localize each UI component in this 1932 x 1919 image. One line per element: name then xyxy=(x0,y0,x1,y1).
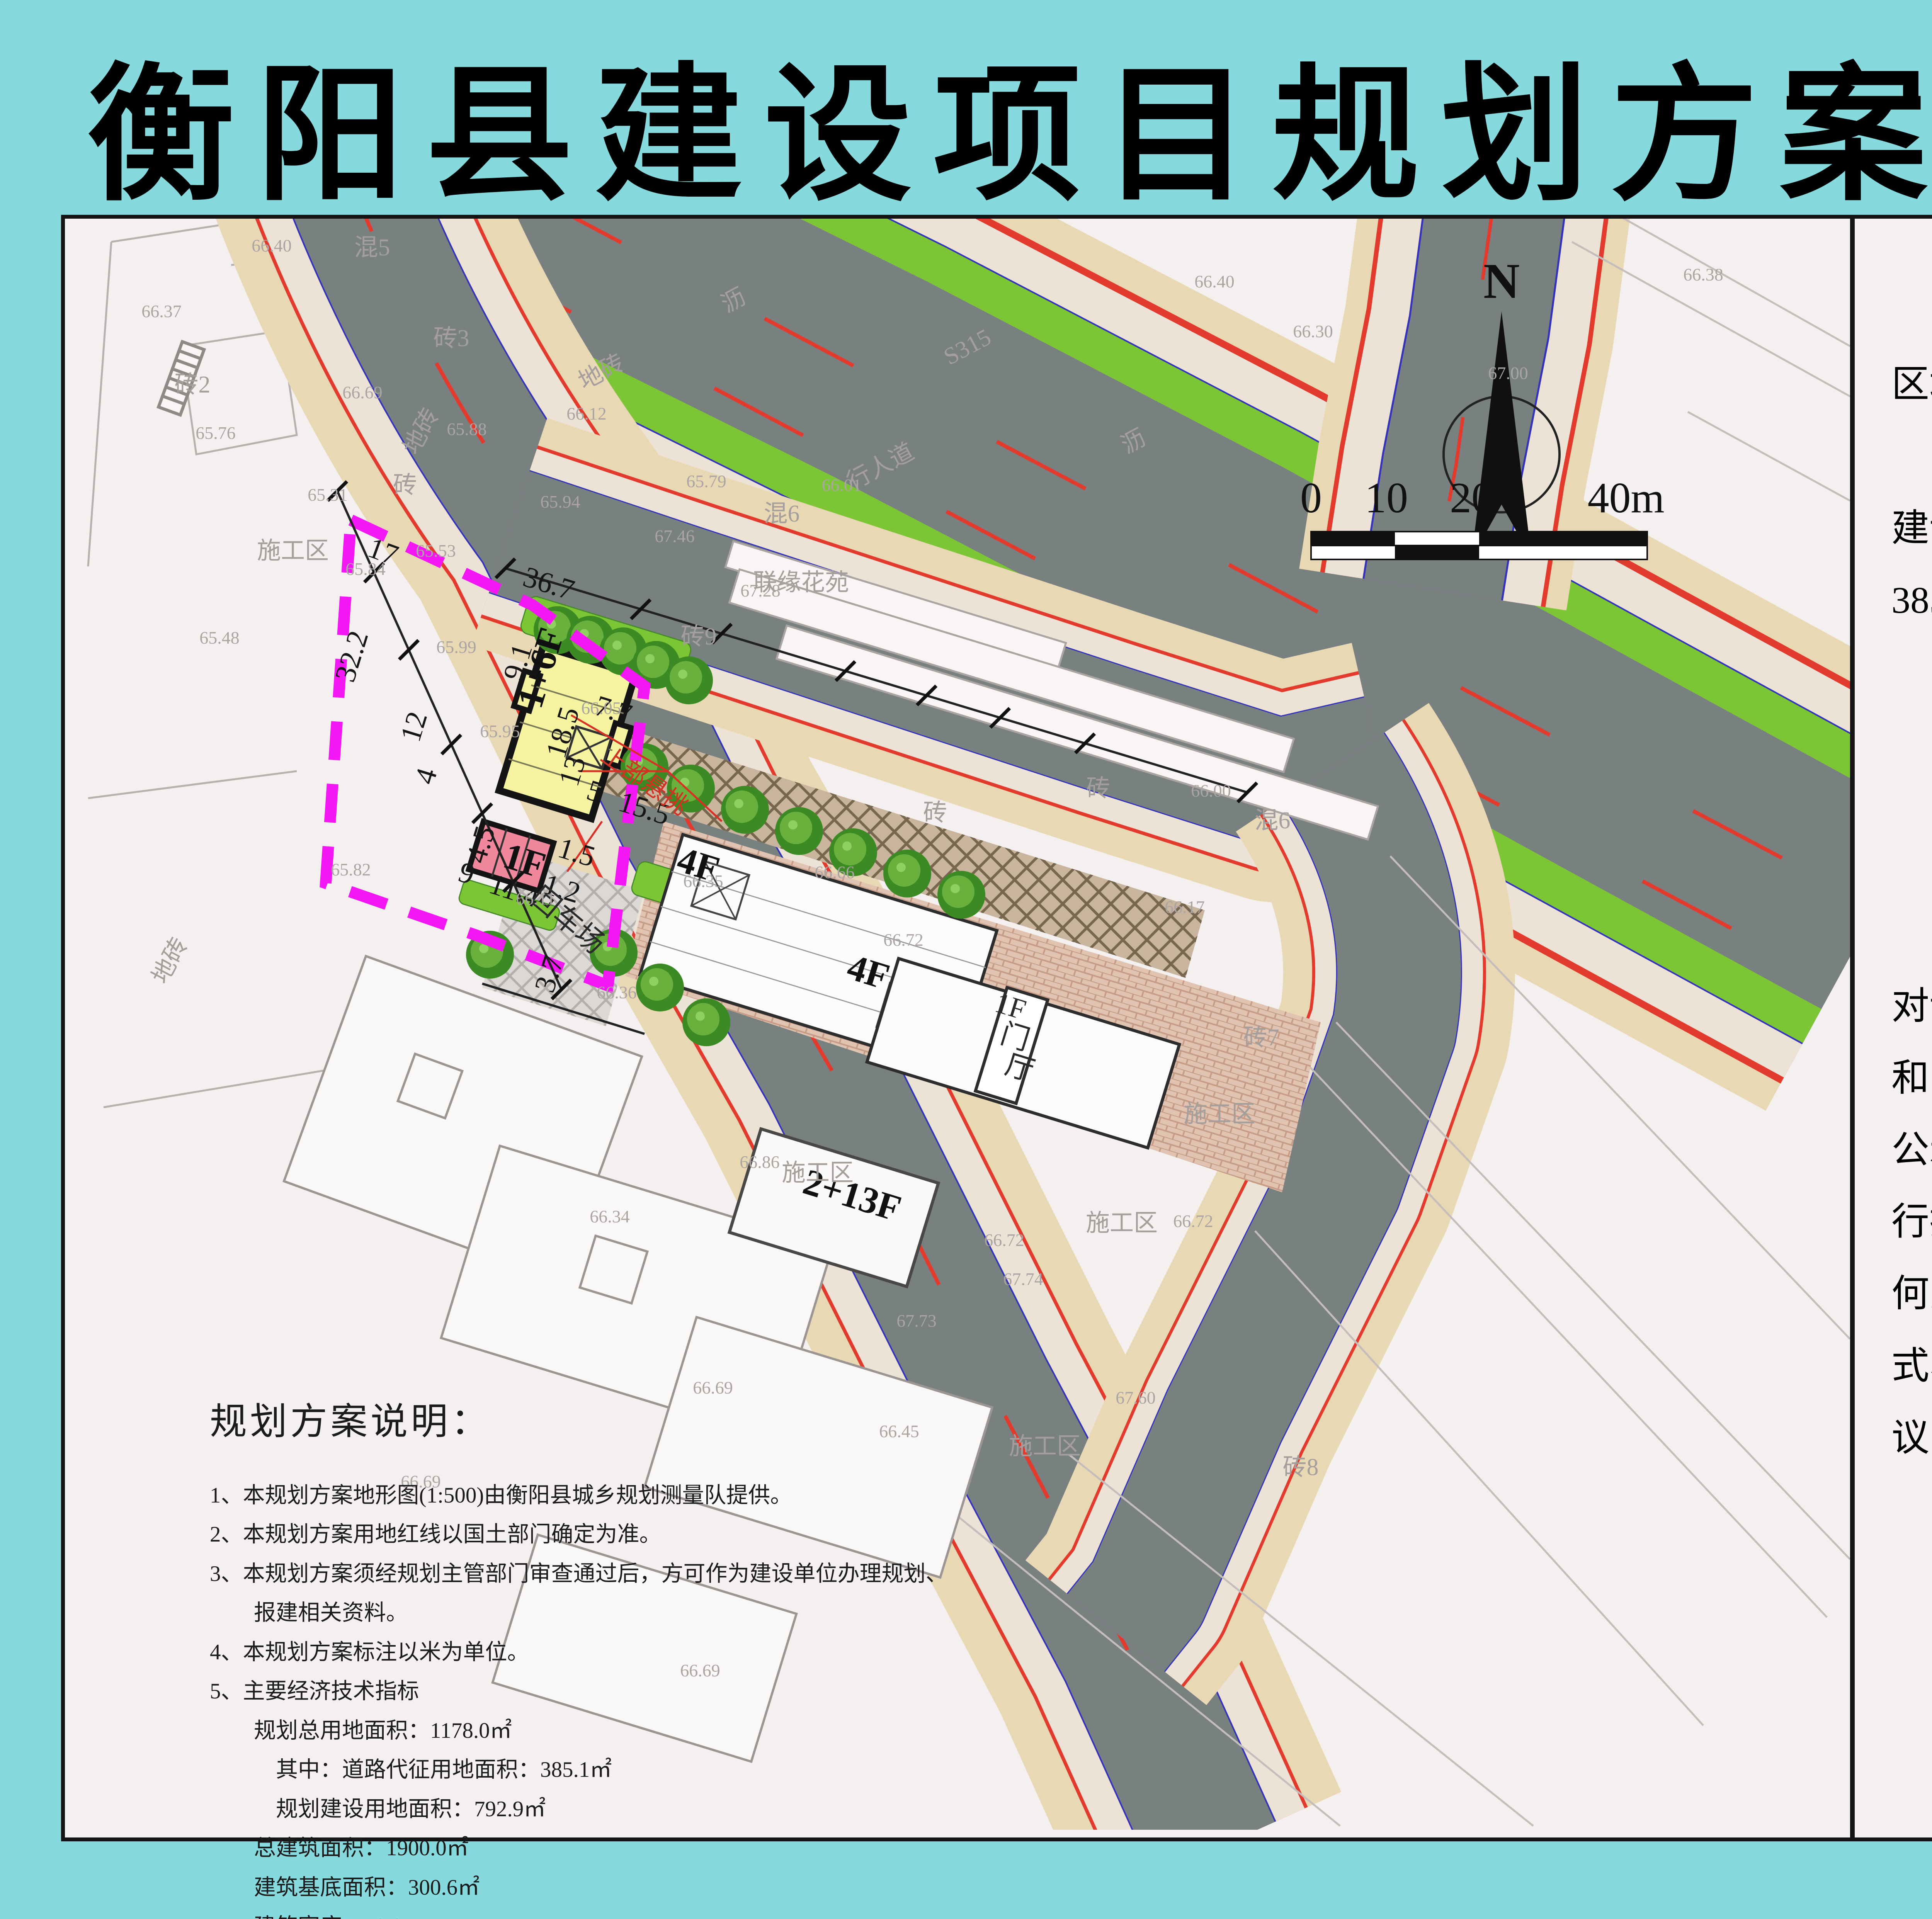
list-item: 1、本规划方案地形图(1:500)由衡阳县城乡规划测量队提供。 xyxy=(210,1476,967,1515)
list-item: 规划总用地面积：1178.0㎡ xyxy=(210,1711,967,1750)
content-box: 混566.4066.37砖2砖366.69砖65.7665.3165.4865.… xyxy=(61,215,1932,1841)
map-label: 66.40 xyxy=(1194,272,1235,291)
notice-panel: “财福苑”项目位于衡阳县西渡镇米子社区培元组，主要技术经济指标如下： 1、规划总… xyxy=(1855,219,1932,1837)
map-label: 65.31 xyxy=(308,485,348,505)
map-label: 40m xyxy=(1587,474,1664,522)
map-label: 施工区 xyxy=(782,1160,854,1186)
notice-intro: “财福苑”项目位于衡阳县西渡镇米子社区培元组，主要技术经济指标如下： xyxy=(1891,277,1932,420)
list-item: 规划建设用地面积：792.9㎡ xyxy=(210,1790,967,1829)
map-label: 65.88 xyxy=(447,419,487,439)
map-label: 10 xyxy=(1365,474,1408,522)
map-label: 施工区 xyxy=(1184,1101,1255,1127)
map-label: 联缘花苑 xyxy=(753,569,849,596)
site-plan-panel: 混566.4066.37砖2砖366.69砖65.7665.3165.4865.… xyxy=(65,219,1850,1830)
list-item: 4、本规划方案标注以米为单位。 xyxy=(210,1633,967,1672)
map-label: 67.74 xyxy=(1003,1269,1043,1289)
tree-icon xyxy=(682,998,730,1046)
map-label: 66.69 xyxy=(342,382,383,402)
map-label: 65.76 xyxy=(196,423,236,443)
map-label: 施工区 xyxy=(1009,1433,1081,1460)
map-label: 66.86 xyxy=(740,1152,780,1172)
tree-icon xyxy=(937,871,985,919)
notice-contact: 联系人：周小成 xyxy=(1891,1546,1932,1618)
map-label: 施工区 xyxy=(1086,1210,1158,1236)
tree-icon xyxy=(721,786,769,834)
tree-icon xyxy=(636,964,684,1011)
map-label: 65.95 xyxy=(480,721,520,741)
page-title: 衡阳县建设项目规划方案批前公示 xyxy=(0,15,1932,229)
map-label: 67.46 xyxy=(655,526,695,546)
map-label: 砖 xyxy=(1086,775,1110,802)
map-label: 65.94 xyxy=(540,492,580,512)
planning-notice-poster: 衡阳县建设项目规划方案批前公示 xyxy=(0,0,1932,1919)
map-label: 砖 xyxy=(923,800,947,826)
map-label: 砖8 xyxy=(1282,1454,1318,1480)
map-label: 65.84 xyxy=(345,559,386,579)
list-item: 1、规划总用地面积：1178.0㎡（其中，建设用地面积792.9㎡、城市公共用地… xyxy=(1891,420,1932,636)
list-item: 5、主要经济技术指标 xyxy=(210,1672,967,1711)
map-label: 67.60 xyxy=(1116,1388,1156,1407)
map-label: 砖9 xyxy=(680,624,716,650)
map-label: 66.72 xyxy=(1173,1211,1213,1231)
map-label: 66.38 xyxy=(1683,265,1723,284)
list-item: 3、本规划方案须经规划主管部门审查通过后，方可作为建设单位办理规划、 xyxy=(210,1554,967,1593)
map-label: 66.12 xyxy=(566,404,607,423)
list-item: 2、本规划方案用地红线以国土部门确定为准。 xyxy=(210,1515,967,1554)
map-label: 67.73 xyxy=(896,1311,937,1331)
map-label: 砖2 xyxy=(174,372,210,398)
map-label: 66.01 xyxy=(821,475,862,495)
map-label: 66.66 xyxy=(815,862,855,882)
map-label: 66.11 xyxy=(516,889,555,908)
map-label: 65.53 xyxy=(416,541,456,561)
map-label: 砖3 xyxy=(433,325,469,352)
notice-website: 网址：http://www.hyx.gov.com xyxy=(1891,1474,1932,1546)
list-item: 其中：道路代征用地面积：385.1㎡ xyxy=(210,1750,967,1789)
map-label: 66.30 xyxy=(1293,321,1333,341)
map-label: 66.36 xyxy=(597,982,637,1002)
map-label: 66.00 xyxy=(1191,781,1231,801)
map-label: 混6 xyxy=(1254,807,1290,834)
map-label: 混5 xyxy=(354,235,390,261)
tree-icon xyxy=(775,807,823,855)
map-label: 20 xyxy=(1450,474,1493,522)
map-label: 66.72 xyxy=(883,930,923,950)
plan-notes: 规划方案说明： 1、本规划方案地形图(1:500)由衡阳县城乡规划测量队提供。2… xyxy=(210,1391,967,1919)
notice-indicators: 1、规划总用地面积：1178.0㎡（其中，建设用地面积792.9㎡、城市公共用地… xyxy=(1891,420,1932,852)
map-label: 0 xyxy=(1300,474,1322,522)
tree-icon xyxy=(883,850,931,897)
list-item: 2、规划总建筑面积：1900.0㎡ xyxy=(1891,636,1932,708)
map-label: 混6 xyxy=(764,501,799,527)
list-item: 建筑基底面积：300.6㎡ xyxy=(210,1868,967,1907)
plan-notes-lines: 1、本规划方案地形图(1:500)由衡阳县城乡规划测量队提供。2、本规划方案用地… xyxy=(210,1476,967,1919)
notice-body: 2020年1月6日，我局召开局党组会议，对该项目方案审议并通过，根据中华人民共和… xyxy=(1891,899,1932,1474)
list-item: 3、容积率：2.4 xyxy=(1891,708,1932,780)
panel-divider xyxy=(1850,219,1855,1837)
map-label: 66.37 xyxy=(141,301,182,321)
map-label: 施工区 xyxy=(257,538,329,564)
map-label: 66.72 xyxy=(984,1230,1024,1250)
list-item: 报建相关资料。 xyxy=(210,1593,967,1632)
map-label: N xyxy=(1483,253,1520,309)
map-label: 67.00 xyxy=(1488,363,1528,383)
list-item: 建筑密度：38.0% xyxy=(210,1907,967,1919)
map-label: 65.82 xyxy=(331,860,371,879)
map-label: 66.17 xyxy=(1165,897,1205,917)
map-label: 66.40 xyxy=(252,236,292,255)
plan-notes-title: 规划方案说明： xyxy=(210,1391,967,1445)
list-item: 4、建筑密度：38.0% xyxy=(1891,780,1932,852)
scale-bar xyxy=(1311,532,1647,559)
map-label: 66.05 xyxy=(581,698,621,718)
map-label: 66.34 xyxy=(590,1207,630,1226)
map-label: 65.48 xyxy=(199,628,240,648)
map-label: 65.79 xyxy=(686,471,726,491)
notice-phone: 联系电话：0734-6653022 xyxy=(1891,1618,1932,1690)
tree-icon xyxy=(665,656,713,704)
map-label: 65.99 xyxy=(436,637,476,657)
map-label: 砖7 xyxy=(1243,1025,1279,1051)
map-label: 砖 xyxy=(393,472,417,498)
list-item: 总建筑面积：1900.0㎡ xyxy=(210,1829,967,1868)
